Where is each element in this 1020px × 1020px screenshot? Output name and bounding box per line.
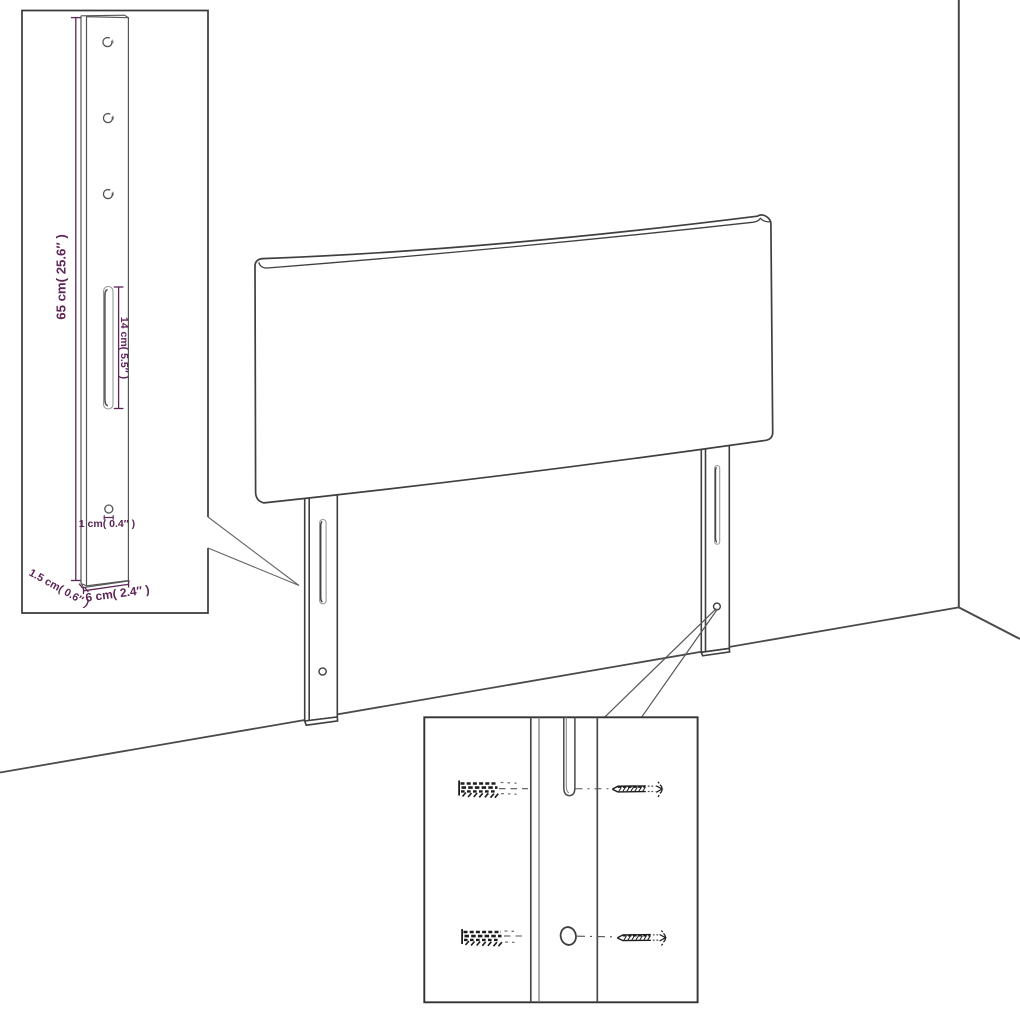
svg-text:14 cm( 5.5″ ): 14 cm( 5.5″ ) [118,317,130,379]
svg-text:1 cm( 0.4″ ): 1 cm( 0.4″ ) [79,518,135,530]
svg-text:65 cm( 25.6″ ): 65 cm( 25.6″ ) [54,234,69,320]
